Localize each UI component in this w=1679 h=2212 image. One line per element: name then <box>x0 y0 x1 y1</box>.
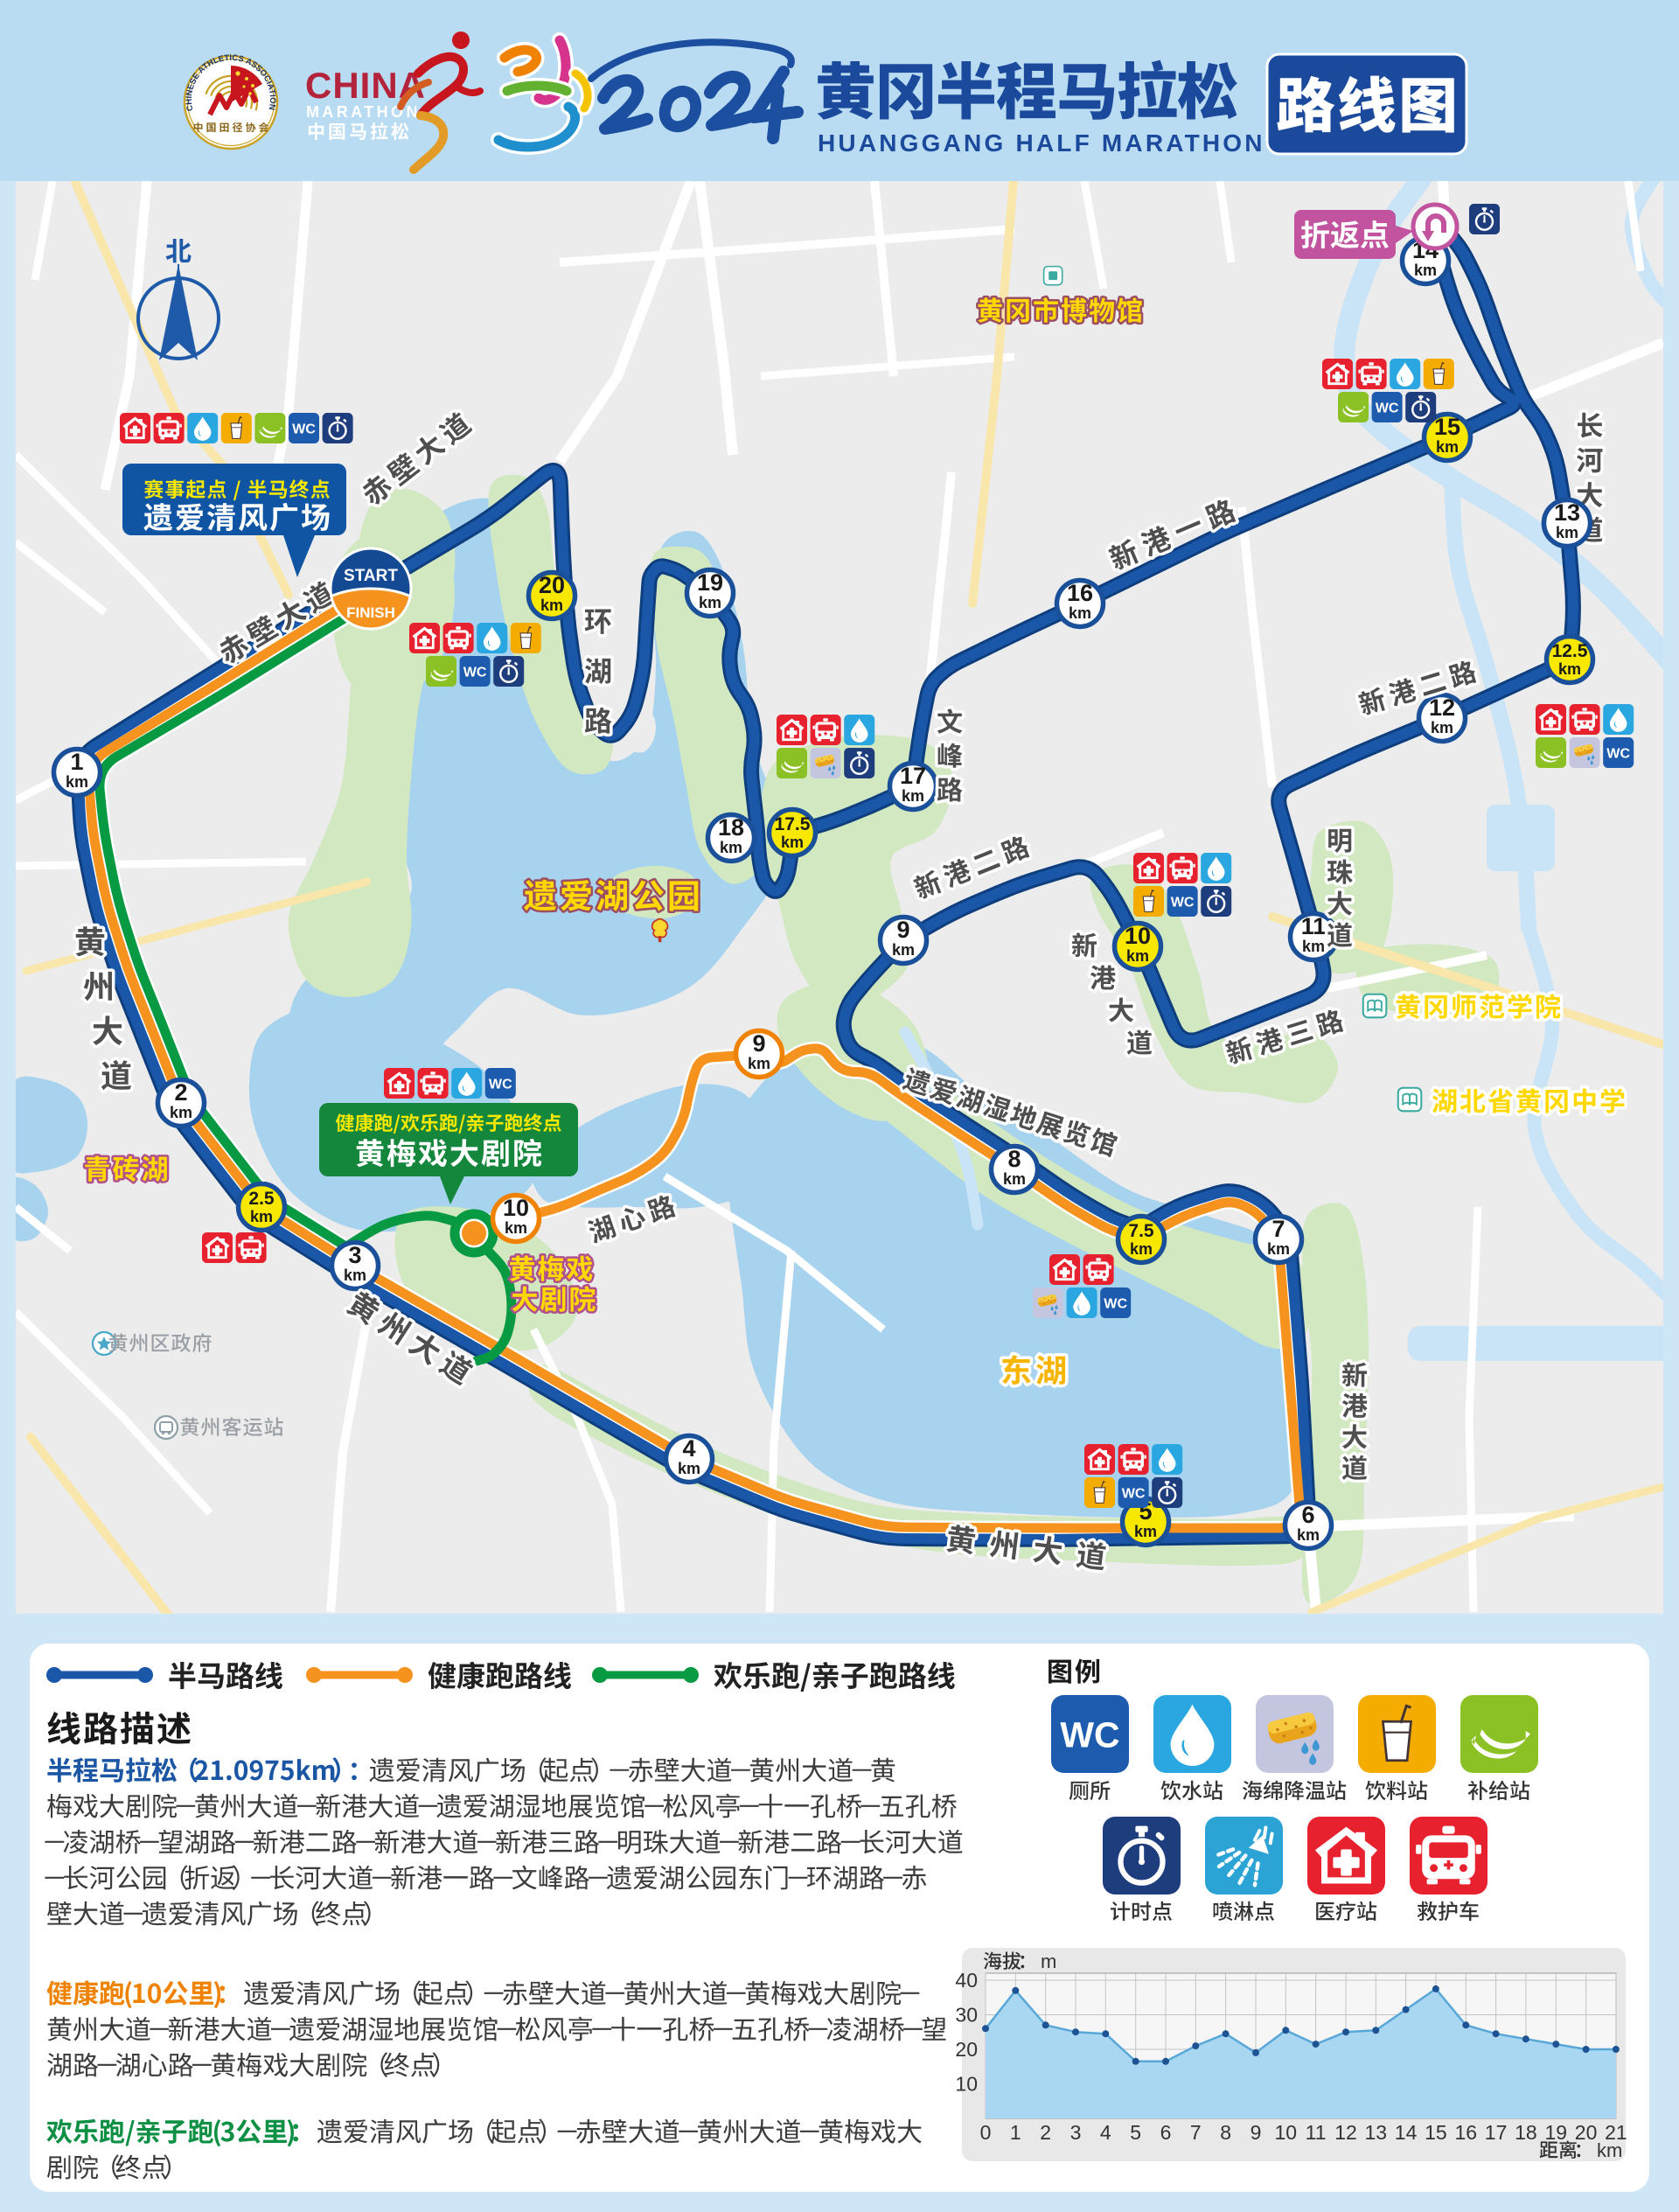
svg-text:17: 17 <box>1485 2121 1508 2144</box>
svg-text:16: 16 <box>1455 2121 1478 2144</box>
svg-text:3: 3 <box>1070 2121 1082 2144</box>
svg-text:7: 7 <box>1190 2121 1202 2144</box>
svg-text:km: km <box>1134 1523 1157 1540</box>
svg-text:7: 7 <box>1271 1216 1285 1242</box>
svg-text:2: 2 <box>1040 2121 1051 2144</box>
svg-text:3: 3 <box>348 1242 361 1268</box>
svg-text:20: 20 <box>955 2038 978 2061</box>
svg-text:0: 0 <box>980 2121 992 2144</box>
svg-text:20: 20 <box>1575 2121 1598 2144</box>
svg-text:km: km <box>720 839 742 856</box>
svg-text:m: m <box>1041 1950 1056 1972</box>
svg-text:START: START <box>344 567 398 585</box>
svg-text:11: 11 <box>1306 2121 1327 2144</box>
svg-text:km: km <box>250 1208 273 1225</box>
svg-text:13: 13 <box>1554 499 1580 526</box>
svg-text:km: km <box>505 1219 527 1237</box>
svg-text:2.5: 2.5 <box>248 1189 275 1209</box>
svg-text:12: 12 <box>1429 694 1455 721</box>
svg-text:30: 30 <box>955 2004 978 2027</box>
svg-text:km: km <box>748 1055 770 1072</box>
svg-text:15: 15 <box>1425 2121 1447 2144</box>
svg-text:13: 13 <box>1365 2121 1388 2144</box>
svg-text:2: 2 <box>174 1079 187 1106</box>
svg-text:6: 6 <box>1160 2121 1172 2144</box>
svg-text:km: km <box>1556 524 1578 541</box>
svg-text:km: km <box>892 941 915 959</box>
svg-text:9: 9 <box>752 1030 765 1057</box>
svg-text:9: 9 <box>1251 2121 1262 2144</box>
svg-text:km: km <box>1297 1526 1320 1544</box>
svg-text:18: 18 <box>1515 2121 1537 2144</box>
svg-text:km: km <box>699 594 721 611</box>
svg-text:km: km <box>1267 1240 1290 1258</box>
svg-text:km: km <box>1126 947 1149 965</box>
svg-text:8: 8 <box>1007 1146 1021 1172</box>
svg-text:19: 19 <box>697 569 723 596</box>
svg-text:18: 18 <box>718 814 744 841</box>
svg-text:17.5: 17.5 <box>775 814 811 834</box>
svg-text:17: 17 <box>900 763 926 789</box>
svg-text:1: 1 <box>1010 2121 1021 2144</box>
svg-text:1: 1 <box>70 749 83 775</box>
svg-text:km: km <box>781 834 804 851</box>
svg-text:5: 5 <box>1130 2121 1141 2144</box>
svg-text:15: 15 <box>1434 414 1460 440</box>
svg-text:6: 6 <box>1301 1502 1314 1528</box>
svg-text:4: 4 <box>1100 2121 1111 2144</box>
svg-text:20: 20 <box>539 572 565 598</box>
svg-text:km: km <box>344 1266 366 1284</box>
svg-text:4: 4 <box>682 1435 695 1462</box>
svg-text:FINISH: FINISH <box>346 604 395 621</box>
svg-text:HUANGGANG HALF MARATHON: HUANGGANG HALF MARATHON <box>818 129 1265 157</box>
svg-text:12: 12 <box>1334 2121 1357 2144</box>
svg-text:10: 10 <box>955 2073 978 2096</box>
svg-text:16: 16 <box>1067 580 1093 606</box>
svg-text:km: km <box>1003 1170 1026 1188</box>
svg-text:10: 10 <box>503 1195 529 1221</box>
svg-text:40: 40 <box>955 1969 978 1992</box>
svg-text:km: km <box>1302 938 1325 955</box>
svg-text:km: km <box>66 773 88 791</box>
svg-text:10: 10 <box>1125 923 1151 949</box>
svg-text:11: 11 <box>1301 913 1327 939</box>
svg-text:km: km <box>902 787 924 805</box>
svg-text:14: 14 <box>1395 2121 1418 2144</box>
svg-text:9: 9 <box>896 917 909 943</box>
svg-text:19: 19 <box>1545 2121 1568 2144</box>
svg-text:8: 8 <box>1220 2121 1231 2144</box>
svg-text:km: km <box>1414 262 1437 279</box>
svg-text:km: km <box>170 1104 192 1121</box>
svg-text:7.5: 7.5 <box>1128 1221 1154 1241</box>
svg-text:10: 10 <box>1275 2121 1298 2144</box>
svg-text:km: km <box>678 1460 700 1477</box>
svg-text:km: km <box>1431 719 1453 736</box>
svg-text:km: km <box>1558 660 1581 678</box>
svg-text:km: km <box>1069 604 1091 622</box>
svg-text:km: km <box>1130 1240 1153 1258</box>
svg-text:km: km <box>1436 438 1459 456</box>
svg-text:km: km <box>1597 2139 1622 2161</box>
svg-text:km: km <box>540 597 563 614</box>
svg-text:12.5: 12.5 <box>1552 641 1588 661</box>
